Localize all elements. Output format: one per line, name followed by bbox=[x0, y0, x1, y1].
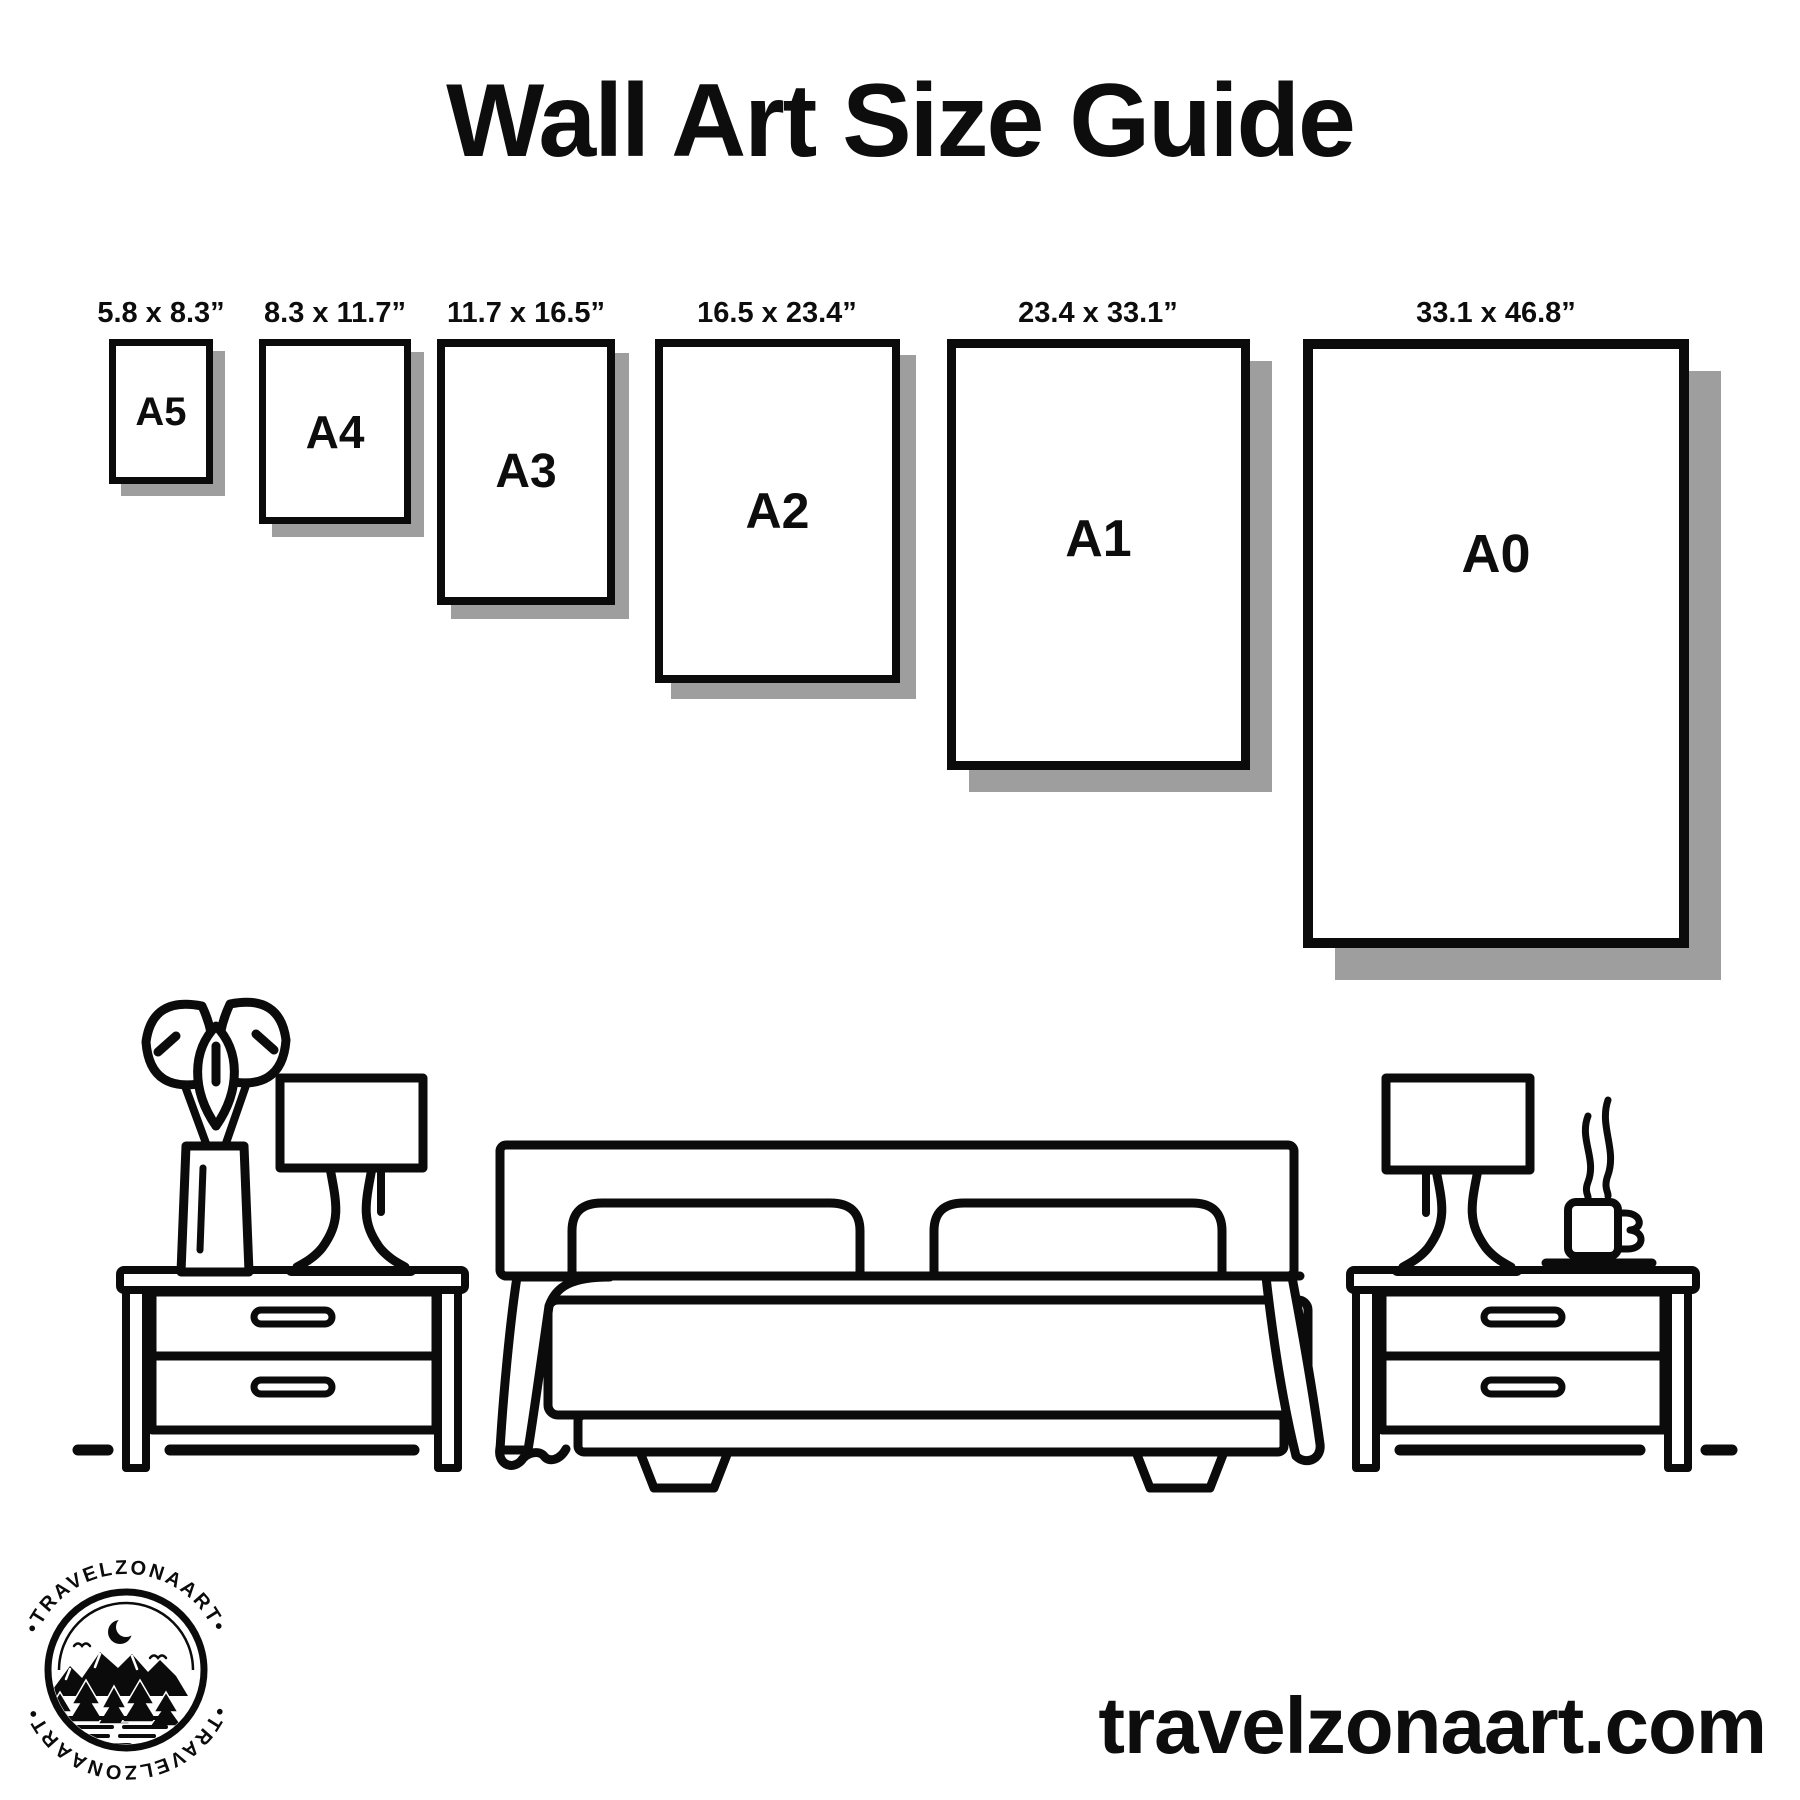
size-code-a2: A2 bbox=[746, 486, 810, 536]
bed-leg-left bbox=[640, 1452, 728, 1488]
size-code-a3: A3 bbox=[495, 448, 556, 496]
leg bbox=[1356, 1273, 1376, 1468]
lamp-shade bbox=[1386, 1078, 1530, 1170]
bed-base bbox=[578, 1415, 1284, 1452]
dimension-label-a4: 8.3 x 11.7” bbox=[264, 297, 406, 330]
bed-leg-right bbox=[1136, 1452, 1224, 1488]
bed-icon bbox=[500, 1145, 1321, 1488]
left-table-lamp-icon bbox=[280, 1078, 423, 1271]
leg bbox=[438, 1273, 458, 1468]
size-code-a0: A0 bbox=[1461, 527, 1530, 581]
leg bbox=[1668, 1273, 1688, 1468]
pillow-right bbox=[934, 1203, 1222, 1276]
lamp-shade bbox=[280, 1078, 423, 1168]
mattress bbox=[548, 1300, 1308, 1415]
poster-frame-a1: A1 bbox=[947, 339, 1250, 770]
size-code-a1: A1 bbox=[1065, 513, 1131, 565]
website-url: travelzonaart.com bbox=[1098, 1680, 1766, 1772]
poster-frame-a2: A2 bbox=[655, 339, 900, 683]
right-nightstand bbox=[1350, 1270, 1696, 1468]
coffee-cup-icon bbox=[1546, 1100, 1652, 1263]
plant-icon bbox=[146, 1002, 286, 1272]
bedroom-scene bbox=[0, 960, 1800, 1520]
dimension-label-a5: 5.8 x 8.3” bbox=[97, 297, 224, 330]
size-code-a5: A5 bbox=[135, 392, 186, 432]
poster-frame-a5: A5 bbox=[109, 339, 213, 484]
vase bbox=[181, 1146, 249, 1272]
page-title: Wall Art Size Guide bbox=[0, 62, 1800, 180]
pillow-left bbox=[572, 1203, 860, 1276]
steam-icon bbox=[1585, 1100, 1610, 1198]
brand-logo: •TRAVELZONAART• •TRAVELZONAART• bbox=[8, 1546, 244, 1794]
cup-body bbox=[1568, 1202, 1618, 1256]
leg bbox=[126, 1273, 146, 1468]
dimension-label-a0: 33.1 x 46.8” bbox=[1416, 297, 1576, 330]
poster-frame-a3: A3 bbox=[437, 339, 615, 605]
right-table-lamp-icon bbox=[1386, 1078, 1530, 1271]
dimension-label-a3: 11.7 x 16.5” bbox=[447, 297, 605, 330]
dimension-label-a2: 16.5 x 23.4” bbox=[697, 297, 857, 330]
left-nightstand bbox=[120, 1270, 465, 1468]
size-guide-poster: Wall Art Size Guide 5.8 x 8.3” 8.3 x 11.… bbox=[0, 0, 1800, 1800]
size-code-a4: A4 bbox=[306, 409, 365, 455]
poster-frame-a4: A4 bbox=[259, 339, 411, 524]
dimension-label-a1: 23.4 x 33.1” bbox=[1018, 297, 1178, 330]
poster-frame-a0: A0 bbox=[1303, 339, 1689, 948]
